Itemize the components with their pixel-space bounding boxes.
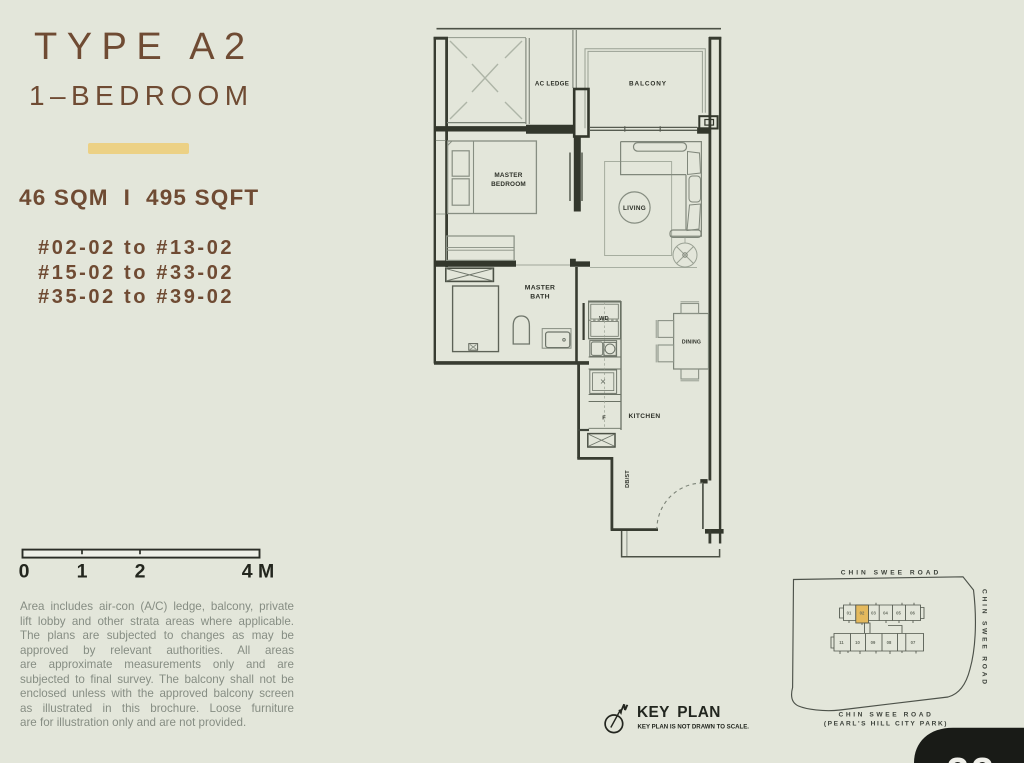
svg-text:01: 01 <box>847 611 852 616</box>
svg-text:(PEARL'S HILL CITY PARK): (PEARL'S HILL CITY PARK) <box>824 721 948 728</box>
svg-text:22: 22 <box>946 749 996 763</box>
svg-text:WD: WD <box>599 316 609 322</box>
svg-text:MASTER: MASTER <box>494 172 522 179</box>
svg-text:10: 10 <box>855 640 860 645</box>
svg-text:03: 03 <box>871 611 876 616</box>
svg-text:07: 07 <box>911 640 916 645</box>
svg-text:F: F <box>602 416 606 422</box>
svg-text:CHIN SWEE ROAD: CHIN SWEE ROAD <box>981 589 988 687</box>
svg-text:04: 04 <box>883 611 888 616</box>
svg-text:KITCHEN: KITCHEN <box>628 413 660 420</box>
svg-text:4 M: 4 M <box>242 561 275 583</box>
svg-text:BATH: BATH <box>530 294 550 301</box>
svg-text:06: 06 <box>910 611 915 616</box>
svg-text:BALCONY: BALCONY <box>629 81 667 88</box>
svg-text:11: 11 <box>839 640 844 645</box>
svg-text:1: 1 <box>77 561 88 583</box>
svg-text:AC LEDGE: AC LEDGE <box>535 81 569 88</box>
svg-text:CHIN SWEE ROAD: CHIN SWEE ROAD <box>838 712 933 719</box>
svg-text:05: 05 <box>896 611 901 616</box>
svg-text:MASTER: MASTER <box>525 285 556 292</box>
svg-text:0: 0 <box>19 561 30 583</box>
svg-text:KEY PLAN: KEY PLAN <box>637 704 721 721</box>
svg-text:02: 02 <box>860 611 865 616</box>
svg-text:DINING: DINING <box>682 340 701 346</box>
svg-text:CHIN SWEE ROAD: CHIN SWEE ROAD <box>841 570 942 577</box>
svg-text:LIVING: LIVING <box>623 205 646 212</box>
svg-text:DB/ST: DB/ST <box>625 470 631 488</box>
svg-text:KEY PLAN IS NOT DRAWN TO SCALE: KEY PLAN IS NOT DRAWN TO SCALE. <box>638 723 750 730</box>
svg-text:08: 08 <box>887 640 892 645</box>
svg-text:2: 2 <box>135 561 146 583</box>
svg-text:BEDROOM: BEDROOM <box>491 181 526 188</box>
svg-text:09: 09 <box>871 640 876 645</box>
svg-text:N: N <box>621 704 628 712</box>
